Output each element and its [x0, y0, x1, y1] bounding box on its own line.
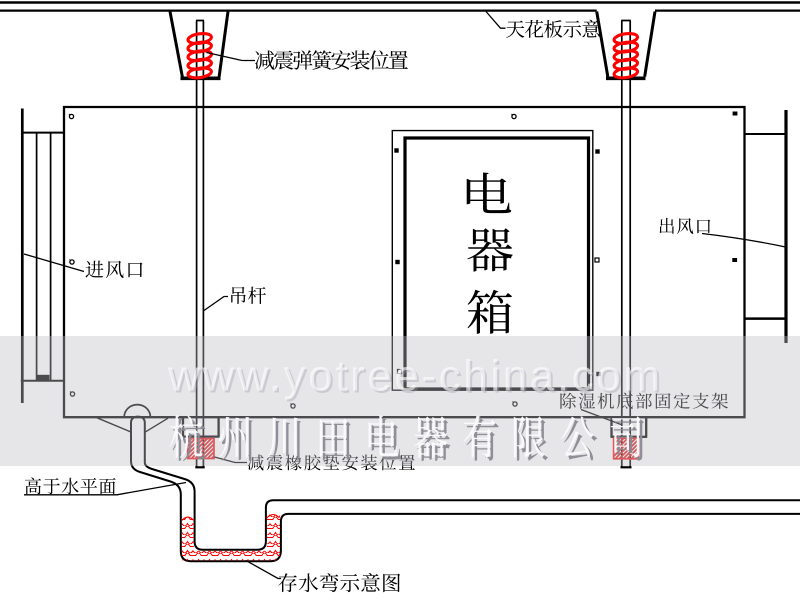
- svg-text:www.yotree-china.com: www.yotree-china.com: [167, 352, 663, 401]
